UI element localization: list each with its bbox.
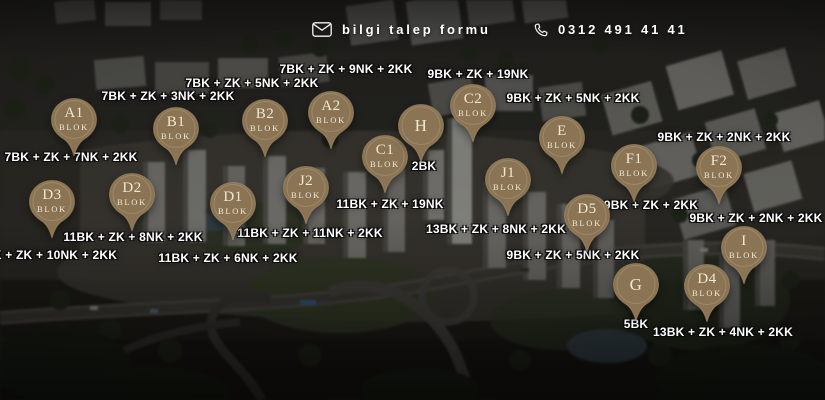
phone-number: 0312 491 41 41 [558,22,688,37]
map-pin-icon [50,97,98,159]
unit-type-label: 9BK + ZK + 2NK + 2KK [657,130,790,144]
unit-type-label: 13BK + ZK + 4NK + 2KK [653,325,793,339]
info-request-link[interactable]: bilgi talep formu [312,22,491,37]
envelope-icon [312,22,332,37]
block-pin-D2[interactable]: D2BLOK [108,172,156,234]
unit-type-label: 11BK + ZK + 6NK + 2KK [158,251,297,265]
map-pin-icon [282,165,330,227]
unit-type-label: 13BK + ZK + 8NK + 2KK [426,222,566,236]
phone-icon [534,23,548,37]
block-pin-D5[interactable]: D5BLOK [563,193,611,255]
map-pin-icon [610,143,658,205]
map-pin-icon [397,103,445,165]
block-pin-E[interactable]: EBLOK [538,115,586,177]
map-pin-icon [152,106,200,168]
map-pin-icon [683,263,731,325]
map-pin-icon [449,83,497,145]
block-pin-A2[interactable]: A2BLOK [307,90,355,152]
map-pin-icon [538,115,586,177]
map-pin-icon [484,157,532,219]
unit-type-label: 9BK + ZK + 5NK + 2KK [506,91,639,105]
unit-type-label: 9BK + ZK + 19NK [427,67,528,81]
unit-type-label: 7BK + ZK + 5NK + 2KK [185,76,318,90]
unit-type-label: 9BK + ZK + 2NK + 2KK [689,211,822,225]
block-pin-F2[interactable]: F2BLOK [695,145,743,207]
map-pin-icon [307,90,355,152]
unit-type-label: 11BK + ZK + 11NK + 2KK [237,226,382,240]
map-pin-icon [612,262,660,324]
block-pin-H[interactable]: H [397,103,445,165]
unit-type-label: 7BK + ZK + 3NK + 2KK [101,89,234,103]
map-pin-icon [563,193,611,255]
map-pin-icon [28,179,76,241]
block-pin-B2[interactable]: B2BLOK [241,98,289,160]
block-pin-J1[interactable]: J1BLOK [484,157,532,219]
map-pin-icon [241,98,289,160]
block-pin-C2[interactable]: C2BLOK [449,83,497,145]
block-pin-D4[interactable]: D4BLOK [683,263,731,325]
masterplan-view: bilgi talep formu 0312 491 41 41 7BK + Z… [0,0,825,400]
block-pin-B1[interactable]: B1BLOK [152,106,200,168]
map-pin-icon [108,172,156,234]
block-pin-G[interactable]: G [612,262,660,324]
unit-type-label: 7BK + ZK + 9NK + 2KK [279,62,412,76]
map-pin-icon [695,145,743,207]
map-pin-icon [209,181,257,243]
phone-link[interactable]: 0312 491 41 41 [534,22,688,37]
block-pin-D3[interactable]: D3BLOK [28,179,76,241]
unit-type-label: 11BK + ZK + 10NK + 2KK [0,248,117,262]
block-pin-F1[interactable]: F1BLOK [610,143,658,205]
block-pin-D1[interactable]: D1BLOK [209,181,257,243]
info-request-label: bilgi talep formu [342,22,491,37]
block-pin-A1[interactable]: A1BLOK [50,97,98,159]
block-pin-J2[interactable]: J2BLOK [282,165,330,227]
unit-type-label: 11BK + ZK + 19NK [336,197,443,211]
